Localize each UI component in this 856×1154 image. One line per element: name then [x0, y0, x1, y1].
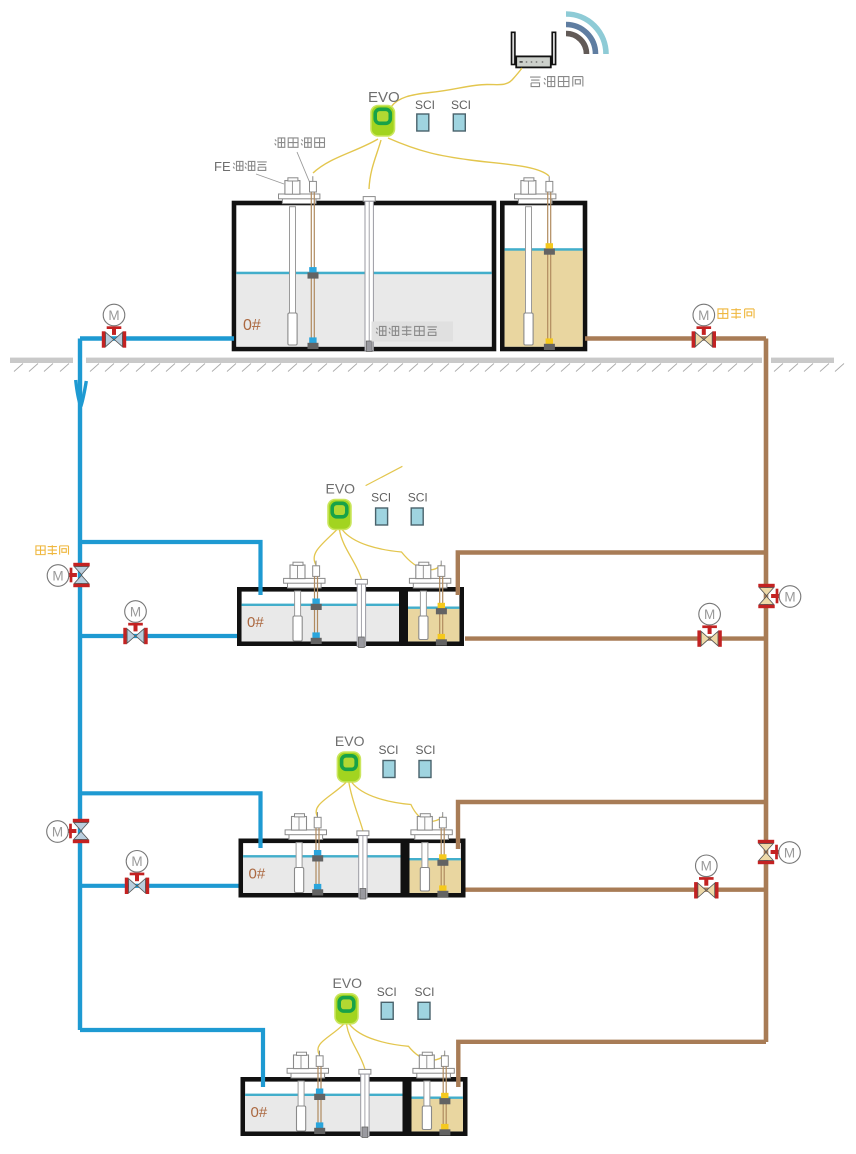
svg-text:EVO: EVO [326, 481, 356, 497]
svg-text:0#: 0# [243, 317, 261, 334]
svg-text:SCI: SCI [416, 743, 436, 757]
svg-text:SCI: SCI [451, 98, 471, 112]
svg-text:SCI: SCI [408, 491, 428, 505]
svg-text:FE: FE [214, 159, 231, 174]
svg-text:EVO: EVO [335, 733, 365, 749]
svg-text:SCI: SCI [379, 743, 399, 757]
svg-text:EVO: EVO [333, 975, 363, 991]
svg-text:EVO: EVO [368, 89, 400, 106]
svg-text:SCI: SCI [415, 985, 435, 999]
svg-text:SCI: SCI [371, 491, 391, 505]
svg-text:SCI: SCI [415, 98, 435, 112]
svg-text:SCI: SCI [377, 985, 397, 999]
